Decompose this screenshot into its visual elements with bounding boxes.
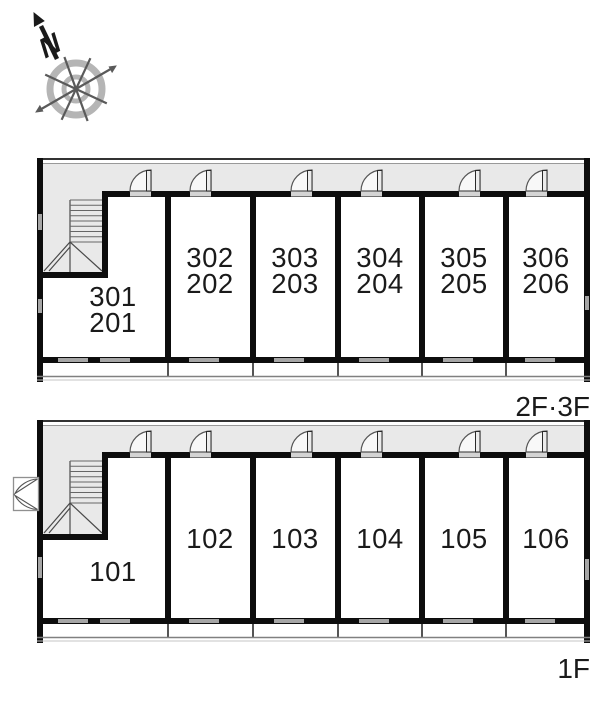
floor-plan-1f: 101 102 103 104 105 106 1F (14, 420, 591, 684)
room-label-104: 104 (356, 523, 403, 554)
balcony-2f3f (37, 363, 590, 380)
room-labels-1f: 101 102 103 104 105 106 (89, 523, 569, 587)
room-label-102: 102 (186, 523, 233, 554)
floor-plan-page: N (0, 0, 612, 720)
room-label-306-206: 306 206 (522, 242, 569, 299)
room-label-305-205: 305 205 (440, 242, 487, 299)
room-label-303-203: 303 203 (271, 242, 318, 299)
svg-text:201: 201 (89, 307, 136, 338)
room-label-103: 103 (271, 523, 318, 554)
room-label-106: 106 (522, 523, 569, 554)
stair-hall-2f3f (43, 164, 102, 272)
room-label-105: 105 (440, 523, 487, 554)
site-plan-canvas: N (0, 0, 612, 720)
balcony-1f (37, 624, 590, 641)
floor-label-1f: 1F (557, 653, 590, 684)
room-label-301-201: 301 201 (89, 281, 136, 338)
room-label-304-204: 304 204 (356, 242, 403, 299)
svg-text:206: 206 (522, 268, 569, 299)
room-label-101: 101 (89, 556, 136, 587)
outer-top-wall (37, 420, 590, 426)
corridor-1f (43, 426, 584, 452)
compass: N (34, 12, 117, 121)
svg-text:202: 202 (186, 268, 233, 299)
svg-text:203: 203 (271, 268, 318, 299)
stair-hall-1f (43, 426, 102, 534)
svg-text:204: 204 (356, 268, 403, 299)
outer-top-wall (37, 158, 590, 164)
room-label-302-202: 302 202 (186, 242, 233, 299)
compass-rose-icon (35, 57, 117, 121)
floor-label-2f3f: 2F·3F (515, 391, 590, 422)
floor-plan-2f3f: 301 201 302 202 303 203 304 204 305 205 … (37, 158, 590, 422)
corridor-2f3f (43, 164, 584, 191)
room-labels-2f3f: 301 201 302 202 303 203 304 204 305 205 … (89, 242, 569, 338)
svg-text:205: 205 (440, 268, 487, 299)
north-label: N (34, 27, 67, 64)
entrance-double-door (14, 478, 39, 511)
